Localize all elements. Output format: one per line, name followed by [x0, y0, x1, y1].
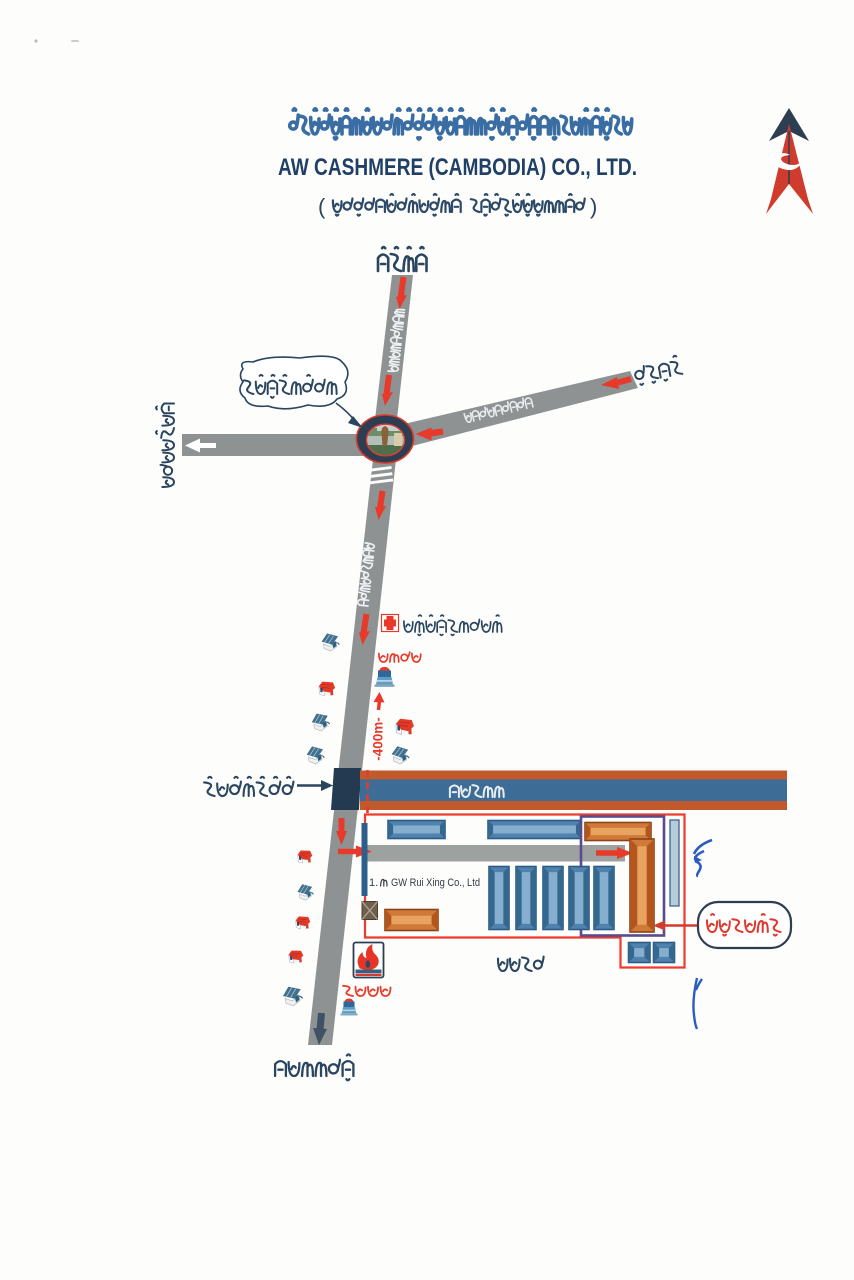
svg-text:(: (: [318, 194, 326, 219]
svg-text:AW CASHMERE (CAMBODIA) CO., LT: AW CASHMERE (CAMBODIA) CO., LTD.: [278, 154, 637, 181]
svg-text:): ): [590, 194, 597, 219]
svg-text:GW Rui Xing Co., Ltd: GW Rui Xing Co., Ltd: [391, 877, 480, 889]
svg-text:-400m-: -400m-: [371, 717, 386, 761]
svg-text:1.: 1.: [369, 877, 378, 889]
